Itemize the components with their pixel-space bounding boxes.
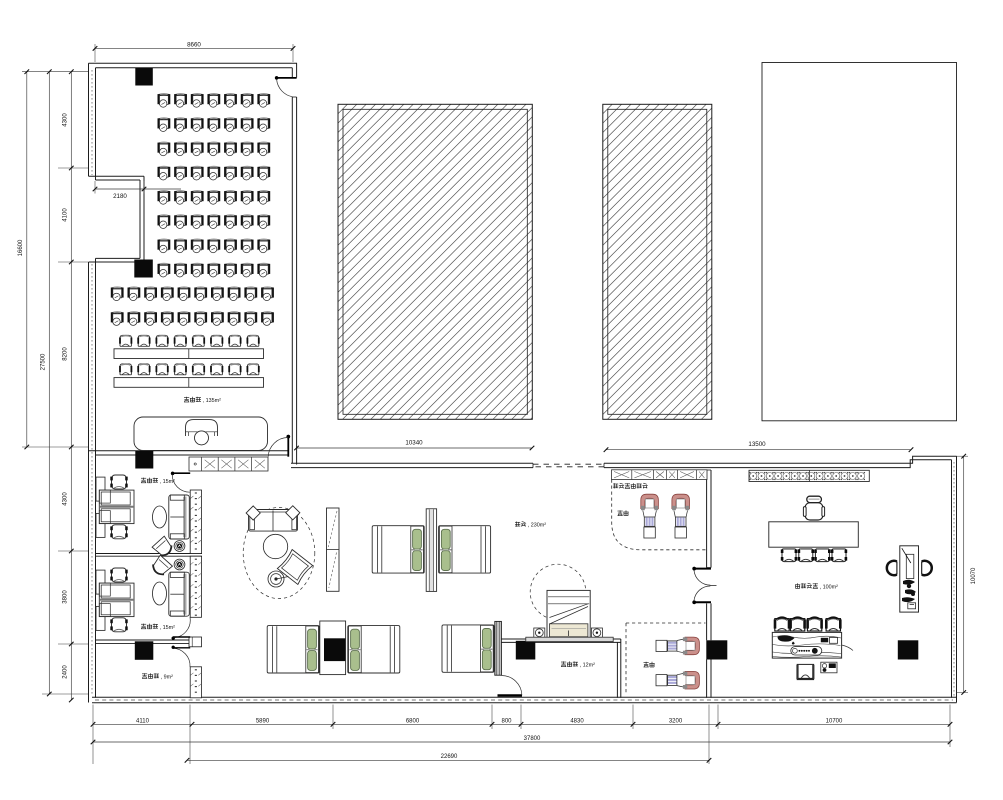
svg-text:, 15m²: , 15m²	[160, 479, 175, 485]
svg-text:3800: 3800	[63, 590, 69, 604]
svg-text:16600: 16600	[18, 239, 24, 256]
svg-text:4110: 4110	[136, 718, 150, 724]
svg-text:10070: 10070	[971, 567, 977, 584]
svg-text:2180: 2180	[113, 193, 127, 200]
svg-text:13500: 13500	[748, 441, 766, 448]
svg-text:4100: 4100	[63, 208, 69, 222]
svg-text:6800: 6800	[406, 718, 420, 724]
svg-text:2400: 2400	[63, 665, 69, 679]
svg-text:8200: 8200	[63, 347, 69, 361]
svg-text:, 230m²: , 230m²	[528, 523, 546, 529]
svg-text:10700: 10700	[826, 718, 843, 724]
svg-text:27500: 27500	[41, 353, 47, 370]
svg-text:37800: 37800	[524, 736, 541, 742]
svg-text:800: 800	[501, 718, 512, 724]
svg-text:3200: 3200	[669, 718, 683, 724]
svg-text:, 135m²: , 135m²	[203, 398, 221, 404]
svg-text:, 15m²: , 15m²	[160, 625, 175, 631]
svg-text:10340: 10340	[405, 439, 423, 446]
svg-text:4300: 4300	[63, 492, 69, 506]
svg-text:22690: 22690	[441, 754, 458, 760]
svg-text:, 12m²: , 12m²	[580, 663, 595, 669]
svg-text:4300: 4300	[63, 113, 69, 127]
svg-text:5890: 5890	[256, 718, 270, 724]
svg-text:, 9m²: , 9m²	[161, 674, 173, 680]
svg-text:4830: 4830	[570, 718, 584, 724]
svg-text:, 100m²: , 100m²	[820, 584, 838, 590]
svg-text:8660: 8660	[187, 42, 201, 49]
